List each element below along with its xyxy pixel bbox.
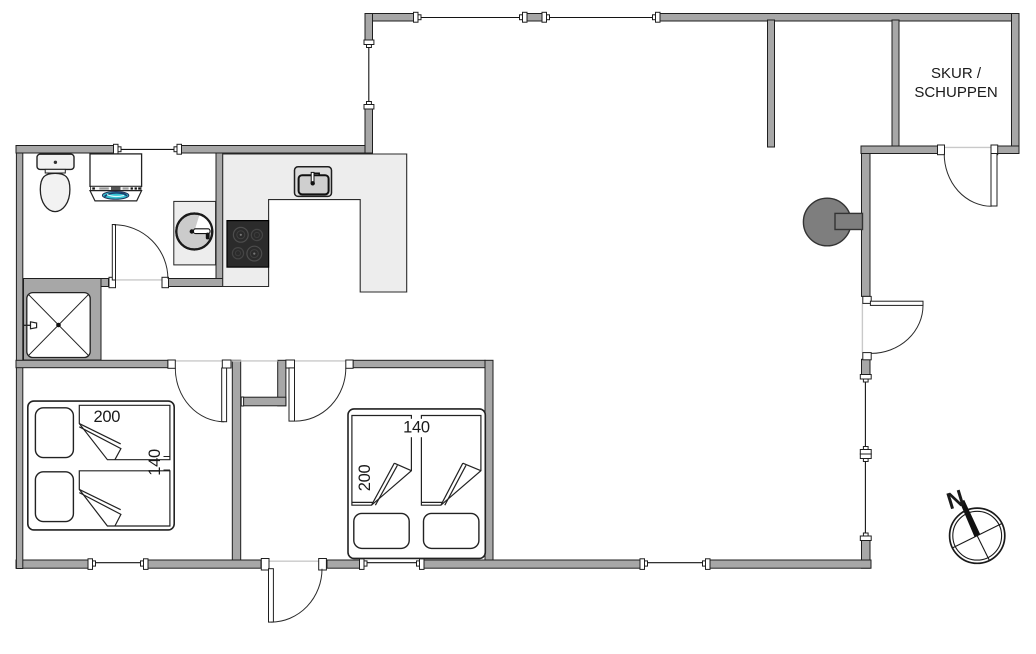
- svg-text:200: 200: [356, 464, 374, 491]
- svg-text:200: 200: [93, 408, 120, 426]
- svg-text:140: 140: [403, 419, 430, 437]
- svg-text:140: 140: [146, 449, 164, 476]
- svg-text:SCHUPPEN: SCHUPPEN: [914, 84, 997, 101]
- svg-text:SKUR /: SKUR /: [931, 65, 982, 82]
